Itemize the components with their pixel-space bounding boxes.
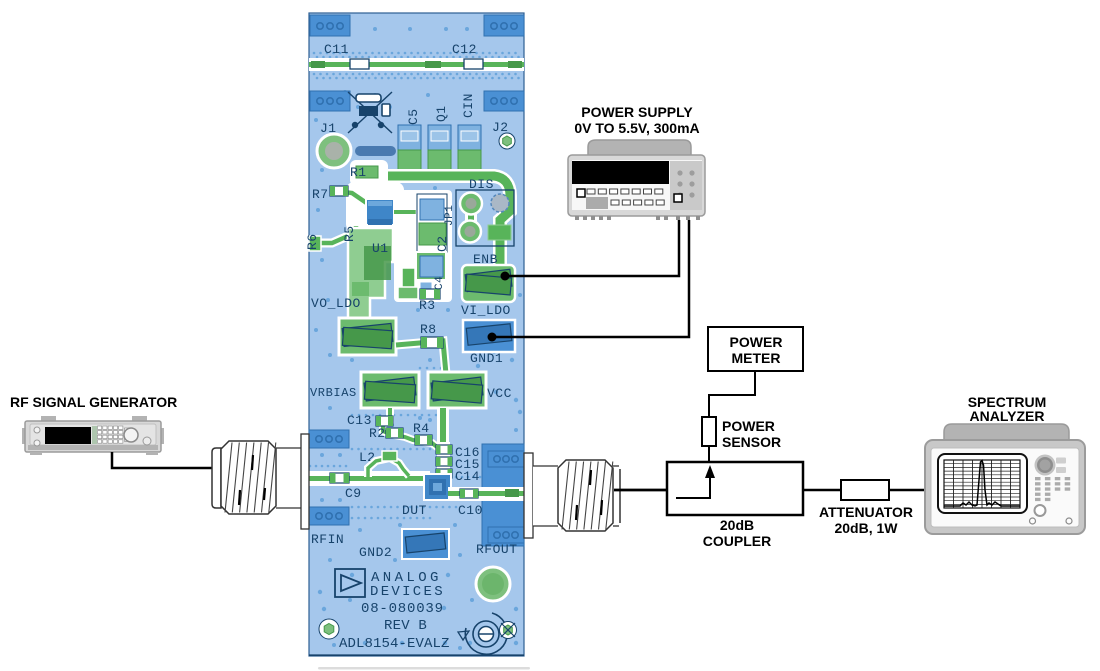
svg-text:C10: C10 [458, 503, 483, 518]
svg-text:R6: R6 [305, 233, 320, 250]
svg-text:VI_LDO: VI_LDO [461, 303, 511, 318]
svg-text:ADL8154-EVALZ: ADL8154-EVALZ [339, 636, 450, 652]
svg-text:R5: R5 [342, 225, 357, 242]
svg-text:R2: R2 [369, 426, 386, 441]
svg-text:C11: C11 [324, 42, 349, 57]
svg-text:GND2: GND2 [359, 545, 392, 560]
svg-text:DEVICES: DEVICES [370, 584, 445, 600]
svg-text:C9: C9 [345, 486, 362, 501]
svg-text:VRBIAS: VRBIAS [310, 386, 357, 400]
svg-text:POWER: POWER [730, 334, 783, 350]
svg-text:VO_LDO: VO_LDO [311, 296, 361, 311]
svg-text:R4: R4 [413, 421, 430, 436]
svg-text:ANALYZER: ANALYZER [970, 408, 1045, 424]
svg-text:RF SIGNAL GENERATOR: RF SIGNAL GENERATOR [10, 394, 177, 410]
svg-text:C5: C5 [406, 108, 421, 125]
svg-text:C12: C12 [452, 42, 477, 57]
svg-text:POWER SUPPLY: POWER SUPPLY [581, 104, 693, 120]
svg-text:POWER: POWER [722, 418, 775, 434]
svg-text:DUT: DUT [402, 503, 427, 518]
svg-text:RFOUT: RFOUT [476, 542, 518, 557]
svg-text:RFIN: RFIN [311, 532, 344, 547]
svg-text:CIN: CIN [461, 93, 476, 118]
svg-text:08-080039: 08-080039 [361, 601, 444, 617]
svg-text:R1: R1 [350, 165, 367, 180]
svg-text:REV B: REV B [384, 618, 427, 634]
svg-text:20dB, 1W: 20dB, 1W [834, 520, 898, 536]
svg-text:R7: R7 [312, 187, 329, 202]
svg-text:U1: U1 [372, 241, 389, 256]
svg-text:SENSOR: SENSOR [722, 434, 781, 450]
svg-text:C4: C4 [434, 276, 446, 290]
svg-text:0V TO 5.5V, 300mA: 0V TO 5.5V, 300mA [574, 120, 699, 136]
svg-text:R8: R8 [420, 322, 437, 337]
svg-text:METER: METER [732, 350, 781, 366]
svg-text:COUPLER: COUPLER [703, 533, 771, 549]
svg-text:GND1: GND1 [470, 351, 503, 366]
svg-text:VCC: VCC [487, 386, 512, 401]
svg-text:ATTENUATOR: ATTENUATOR [819, 504, 913, 520]
svg-text:C14: C14 [455, 469, 480, 484]
svg-text:R3: R3 [419, 298, 436, 313]
svg-text:JP1: JP1 [444, 205, 456, 226]
svg-text:20dB: 20dB [720, 517, 754, 533]
svg-text:C2: C2 [435, 235, 450, 252]
svg-text:Q1: Q1 [434, 105, 449, 122]
